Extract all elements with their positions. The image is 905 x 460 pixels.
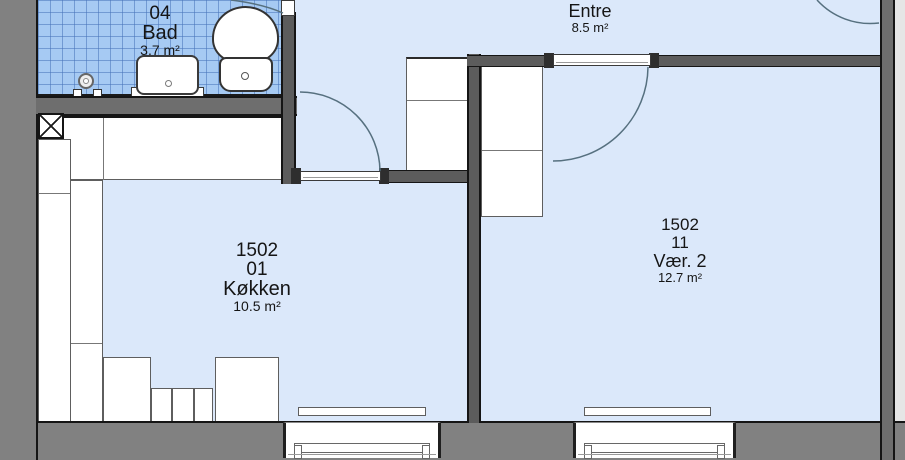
upper-right-door-arc	[817, 0, 879, 24]
wall-entre-kitchen	[388, 170, 468, 183]
window-glazing	[294, 443, 430, 453]
kitchen-base-cabinet	[172, 388, 194, 423]
room-area: 8.5 m²	[535, 20, 645, 35]
room-unit: 04	[95, 4, 225, 23]
outside-right-strip	[894, 0, 905, 460]
room-name: Entre	[535, 2, 645, 20]
wardrobe-seam	[482, 150, 542, 151]
wall-bathroom-east	[281, 12, 296, 184]
room-area: 3.7 m²	[95, 43, 225, 58]
room-label-vaer2: 1502 11 Vær. 2 12.7 m²	[618, 216, 742, 285]
window-sill	[578, 454, 731, 455]
room-unit: 11	[618, 234, 742, 252]
room-unit: 01	[195, 260, 319, 279]
vaer2-door-arc	[553, 67, 648, 161]
wall-right-outer	[880, 0, 895, 460]
room-number: 1502	[618, 216, 742, 234]
counter-seam	[103, 118, 104, 180]
kitchen-counter-top	[63, 116, 282, 180]
wall-bottom-outer	[0, 421, 905, 460]
room-label-entre: Entre 8.5 m²	[535, 2, 645, 35]
vaer2-window	[573, 422, 736, 458]
toilet-flush-button	[241, 72, 249, 80]
sink-drain	[165, 80, 172, 87]
room-name: Bad	[95, 23, 225, 43]
sink	[136, 55, 199, 95]
wall-vaer2-north-west	[467, 55, 553, 67]
wardrobe-seam	[407, 100, 469, 101]
radiator	[298, 407, 426, 416]
radiator	[584, 407, 711, 416]
counter-seam	[71, 343, 102, 344]
room-label-kokken: 1502 01 Køkken 10.5 m²	[195, 241, 319, 314]
kitchen-base-cabinet	[151, 388, 172, 423]
bathroom-door-slab	[281, 0, 295, 16]
kitchen-door-slab	[300, 171, 381, 181]
counter-seam	[39, 193, 70, 194]
wall-kitchen-vaer2	[467, 54, 481, 423]
room-number: 1502	[195, 241, 319, 260]
window-glazing	[584, 443, 725, 453]
shower-valve-center	[83, 78, 89, 84]
kitchen-base-cabinet	[194, 388, 213, 423]
floorplan-canvas: 1502 04 Bad 3.7 m² Entre 8.5 m² 1502 01 …	[0, 0, 905, 460]
room-area: 10.5 m²	[195, 299, 319, 314]
kitchen-door-arc	[300, 92, 380, 171]
wall-vaer2-north-east	[650, 55, 880, 67]
window-sill	[288, 454, 436, 455]
vaer2-door-slab	[553, 54, 651, 66]
room-name: Køkken	[195, 279, 319, 299]
kitchen-base-cabinet	[103, 357, 151, 423]
kitchen-base-cabinet	[215, 357, 279, 423]
entre-wardrobe	[406, 57, 470, 172]
vaer2-wardrobe	[481, 63, 543, 217]
wall-left-outer	[0, 0, 38, 460]
wall-bathroom-south	[36, 96, 297, 116]
kitchen-window	[283, 422, 441, 458]
ventilation-shaft-icon	[38, 113, 64, 139]
kitchen-counter-left	[38, 139, 71, 423]
room-name: Vær. 2	[618, 252, 742, 270]
room-area: 12.7 m²	[618, 270, 742, 285]
room-label-bad: 1502 04 Bad 3.7 m²	[95, 0, 225, 58]
kitchen-counter-mid	[70, 180, 103, 423]
